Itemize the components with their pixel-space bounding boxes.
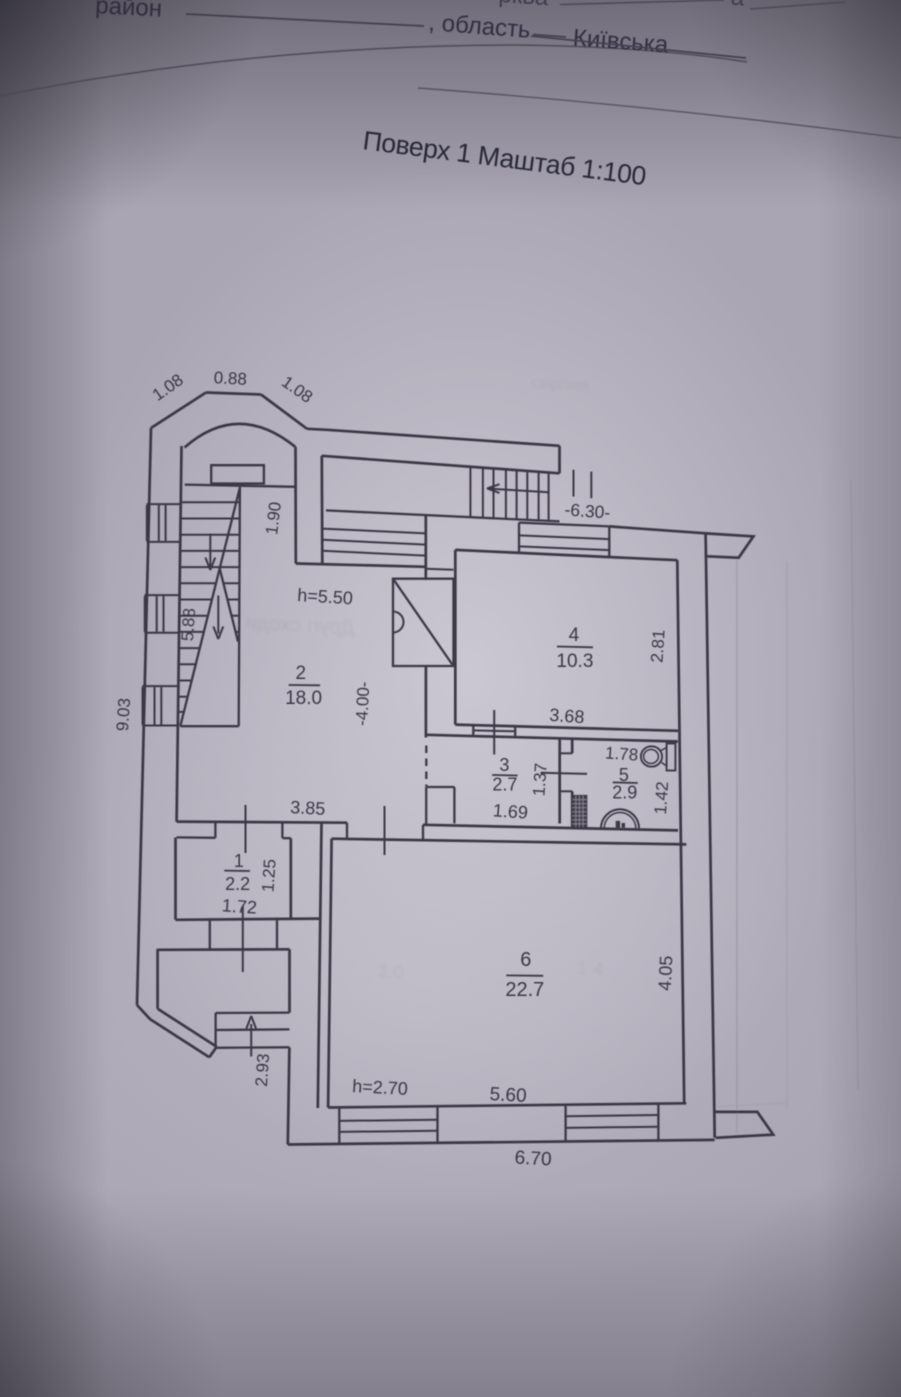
svg-text:3: 3 xyxy=(499,755,509,775)
svg-text:1.25: 1.25 xyxy=(258,858,279,892)
svg-text:0.88: 0.88 xyxy=(213,368,247,389)
svg-text:2.93: 2.93 xyxy=(252,1053,273,1087)
svg-text:рква: рква xyxy=(498,0,550,11)
svg-text:1.37: 1.37 xyxy=(529,762,550,796)
svg-text:3.85: 3.85 xyxy=(290,797,326,819)
svg-text:1 4: 1 4 xyxy=(577,958,605,980)
svg-text:6: 6 xyxy=(520,949,531,971)
svg-text:-6.30-: -6.30- xyxy=(564,499,611,522)
svg-text:Другі сходи: Другі сходи xyxy=(245,611,356,640)
svg-text:4.05: 4.05 xyxy=(655,955,677,991)
svg-text:18.0: 18.0 xyxy=(285,688,322,709)
svg-text:​3.0: ​3.0 xyxy=(377,961,404,983)
svg-text:1.08: 1.08 xyxy=(149,370,187,405)
svg-text:1.78: 1.78 xyxy=(605,743,639,764)
svg-text:1.42: 1.42 xyxy=(651,781,672,815)
svg-text:6.70: 6.70 xyxy=(514,1148,552,1171)
svg-text:2: 2 xyxy=(296,663,307,684)
svg-text:-4.00-: -4.00- xyxy=(352,681,373,726)
svg-text:10.3: 10.3 xyxy=(556,651,593,672)
svg-text:2.2: 2.2 xyxy=(225,874,250,894)
svg-text:1: 1 xyxy=(234,851,244,871)
svg-text:5.60: 5.60 xyxy=(489,1084,527,1107)
svg-text:3.68: 3.68 xyxy=(549,705,585,727)
svg-text:h=5.50: h=5.50 xyxy=(297,585,354,608)
svg-text:1.08: 1.08 xyxy=(278,372,316,407)
svg-text:район: район xyxy=(95,0,163,22)
svg-text:2.81: 2.81 xyxy=(647,629,668,663)
svg-text:2.9: 2.9 xyxy=(612,783,637,803)
svg-text:22.7: 22.7 xyxy=(505,979,544,1001)
svg-text:4: 4 xyxy=(569,625,580,646)
svg-text:, область: , область xyxy=(428,9,532,44)
svg-text:5.88: 5.88 xyxy=(178,607,199,641)
svg-text:а: а xyxy=(730,0,746,11)
svg-text:h=2.70: h=2.70 xyxy=(352,1076,409,1099)
svg-text:1.90: 1.90 xyxy=(262,501,285,536)
svg-text:серпня: серпня xyxy=(531,372,590,395)
svg-text:1.72: 1.72 xyxy=(221,895,257,917)
svg-text:2.7: 2.7 xyxy=(492,775,517,795)
svg-text:Поверх 1 Маштаб 1:100: Поверх 1 Маштаб 1:100 xyxy=(361,125,647,191)
svg-text:9.03: 9.03 xyxy=(113,697,134,731)
svg-text:1.69: 1.69 xyxy=(492,800,528,822)
